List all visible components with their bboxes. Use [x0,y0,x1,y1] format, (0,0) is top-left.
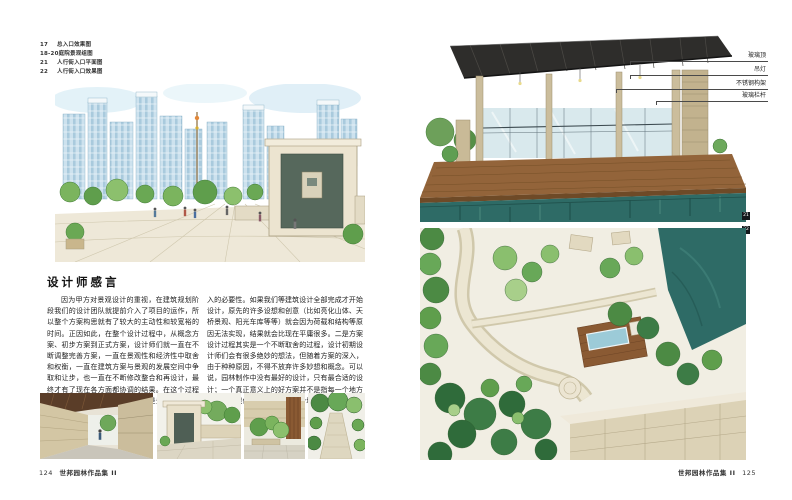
thumbnail-gate-court [157,393,241,459]
book-title: 世邦园林作品集 II [678,469,736,477]
callout-label: 玻璃栏杆 [742,92,766,99]
footer-right: 世邦园林作品集 II 125 [678,467,760,477]
figure-index-item: 21人行街入口平面图 [40,59,103,68]
callout-pendant-lamp: 吊灯 [630,66,768,76]
figure-number: 18-20 [40,50,59,59]
figure-label: 人行街入口平面图 [57,60,103,66]
footer-left: 124 世邦园林作品集 II [35,467,117,477]
figure-label: 总入口效果图 [57,42,91,48]
figure-number: 22 [40,68,57,77]
figure-index-item: 18-20庭院景观组图 [40,50,103,59]
thumbnail-courtyard-plants [244,393,305,459]
callout-label: 玻璃顶 [748,52,766,59]
figure-label: 人行街入口效果图 [57,69,103,75]
aerial-plan-rendering [420,228,746,460]
figure-index-list: 17总入口效果图 18-20庭院景观组图 21人行街入口平面图 22人行街入口效… [40,41,103,77]
glass-wall [483,108,672,158]
thumbnail-corridor [40,393,153,459]
figure-badge-top: 21 [742,212,750,220]
callout-stainless-frame: 不锈钢构架 [616,80,768,90]
callout-glass-roof: 玻璃顶 [630,52,768,62]
plan-plaza [559,377,581,399]
thumbnail-garden-path [308,393,365,459]
page-number: 124 [39,469,53,477]
page-number: 125 [742,469,756,477]
figure-index-item: 22人行街入口效果图 [40,68,103,77]
figure-number: 17 [40,41,57,50]
figure-number: 21 [40,59,57,68]
book-title: 世邦园林作品集 II [60,469,118,477]
book-spread: 17总入口效果图 18-20庭院景观组图 21人行街入口平面图 22人行街入口效… [0,0,792,500]
figure-index-item: 17总入口效果图 [40,41,103,50]
figure-label: 庭院景观组图 [59,51,93,57]
callout-label: 不锈钢构架 [736,80,766,87]
section-title: 设计师感言 [47,274,120,290]
callout-glass-railing: 玻璃栏杆 [656,92,768,102]
main-entrance-rendering [55,84,365,262]
callout-label: 吊灯 [754,66,766,73]
